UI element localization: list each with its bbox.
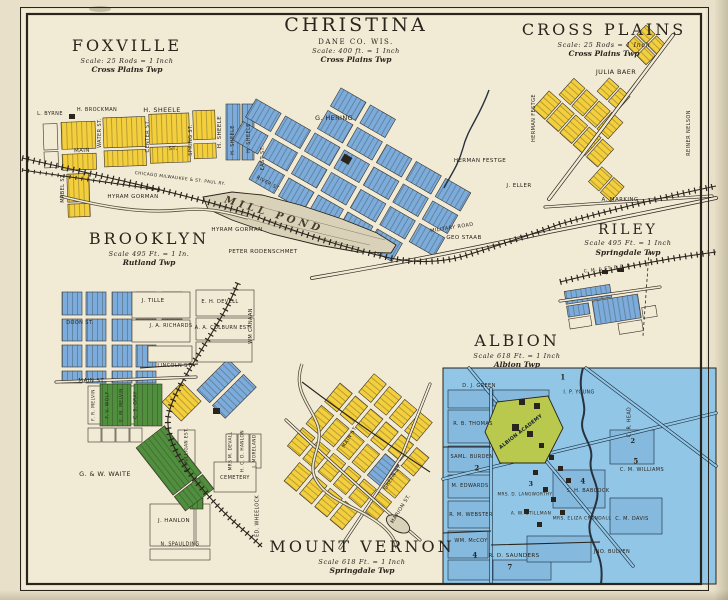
city-block	[527, 536, 591, 562]
lot-lines	[149, 113, 190, 144]
city-block	[132, 292, 190, 318]
city-block	[43, 124, 58, 150]
lot-lines	[112, 345, 132, 367]
city-block	[132, 320, 190, 342]
building	[527, 431, 533, 437]
city-block	[88, 386, 101, 424]
lot-lines	[103, 116, 146, 147]
city-block	[448, 501, 490, 528]
city-block	[448, 475, 490, 498]
building	[558, 466, 563, 471]
city-block	[448, 390, 490, 408]
lot-lines	[194, 143, 217, 159]
lot-lines	[86, 319, 106, 341]
building	[533, 470, 538, 475]
city-block	[214, 462, 256, 492]
lot-lines	[100, 384, 131, 426]
building	[534, 403, 540, 409]
lot-lines	[150, 146, 191, 163]
city-block	[642, 305, 658, 318]
city-block	[88, 428, 101, 442]
lot-lines	[86, 292, 106, 315]
building	[560, 510, 565, 515]
lot-lines	[62, 345, 82, 367]
lot-lines	[104, 149, 147, 166]
lot-lines	[68, 203, 90, 217]
city-block	[196, 318, 254, 340]
lot-lines	[112, 319, 132, 341]
building	[512, 424, 519, 431]
lot-lines	[112, 292, 132, 315]
page-edge-shadow-right	[714, 0, 728, 600]
building	[602, 270, 608, 274]
map-canvas	[0, 0, 728, 600]
atlas-sheet: FOXVILLE Scale: 25 Rods = 1 Inch Cross P…	[0, 0, 728, 600]
city-block	[116, 428, 129, 442]
city-block	[448, 531, 488, 558]
city-block	[150, 504, 194, 546]
building	[618, 268, 624, 272]
city-block	[150, 549, 210, 560]
building	[519, 399, 525, 405]
city-block	[102, 428, 115, 442]
building	[537, 522, 542, 527]
building	[566, 478, 571, 483]
building	[551, 497, 556, 502]
lot-lines	[61, 121, 96, 149]
lot-lines	[136, 371, 156, 383]
city-block	[610, 430, 654, 464]
city-block	[130, 428, 142, 442]
city-block	[448, 560, 490, 580]
city-block	[493, 560, 551, 580]
lot-lines	[62, 292, 82, 315]
lot-lines	[62, 319, 82, 341]
lot-lines	[193, 110, 216, 140]
lot-lines	[86, 345, 106, 367]
page-edge-shadow-bottom	[0, 590, 728, 600]
city-block	[196, 290, 254, 316]
city-block	[196, 504, 210, 546]
city-block	[610, 498, 662, 534]
paper-stain	[89, 6, 111, 12]
city-block	[448, 410, 490, 443]
lot-lines	[134, 384, 162, 426]
building	[213, 408, 220, 414]
building	[543, 487, 548, 492]
building	[524, 509, 529, 514]
city-block	[148, 346, 192, 362]
building	[549, 455, 554, 460]
building	[69, 114, 75, 119]
building	[539, 443, 544, 448]
